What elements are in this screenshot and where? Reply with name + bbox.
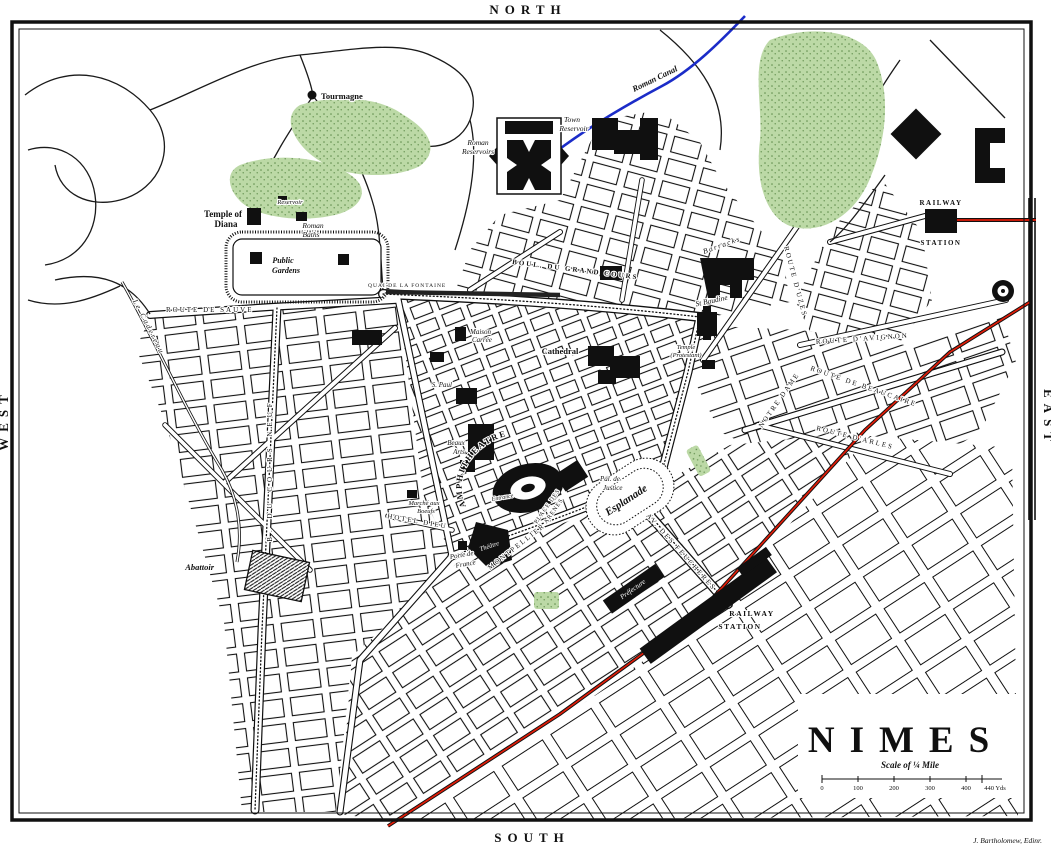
s-paul-church xyxy=(456,388,477,404)
label-station-central-1: RAILWAY xyxy=(729,609,774,618)
svg-text:300: 300 xyxy=(925,785,935,792)
label-temple-protestant-2: (Protestant) xyxy=(670,352,701,359)
label-maison-carree-1: Maison xyxy=(469,328,492,336)
label-temple-diana-2: Diana xyxy=(214,219,238,229)
scale-label: Scale of ¼ Mile xyxy=(881,760,939,770)
label-cours-neuf: B. DU COURS NEUF xyxy=(266,398,274,541)
compass-south: SOUTH xyxy=(494,830,570,845)
label-marche-2: Boeufs xyxy=(417,508,435,515)
label-abattoir: Abattoir xyxy=(184,562,215,572)
label-marche-1: Marché aux xyxy=(408,500,440,507)
label-roman-baths-2: Baths xyxy=(302,230,319,239)
compass-north: NORTH xyxy=(489,2,566,17)
label-station-ne-2: STATION xyxy=(921,239,962,247)
label-pal-justice-1: Pal. de xyxy=(599,475,620,483)
label-roman-reservoirs-2: Reservoirs xyxy=(461,147,494,156)
compass-west: WEST xyxy=(0,389,11,451)
label-tourmagne: Tourmagne xyxy=(321,91,363,101)
label-town-reservoir-1: Town xyxy=(564,115,580,124)
label-public-gardens-1: Public xyxy=(272,256,294,265)
roman-baths-building xyxy=(296,212,307,221)
map-title: NIMES xyxy=(808,720,1004,761)
svg-text:100: 100 xyxy=(853,785,863,792)
label-route-sauve: ROUTE DE SAUVE xyxy=(166,306,254,314)
label-maison-carree-2: Carrée xyxy=(472,336,492,344)
label-temple-diana-1: Temple of xyxy=(204,209,243,219)
porte-de-france-building xyxy=(458,541,467,550)
svg-text:400: 400 xyxy=(961,785,971,792)
label-station-central-2: STATION xyxy=(718,622,761,631)
railway-station-ne-building xyxy=(925,209,957,233)
compass-east: EAST xyxy=(1041,389,1051,447)
label-town-reservoir-2: Reservoir xyxy=(558,124,588,133)
label-station-ne-1: RAILWAY xyxy=(919,199,962,207)
maison-carree-building xyxy=(455,327,466,341)
fontaine-channel xyxy=(386,292,560,295)
map-canvas: Tourmagne Temple of Diana Reservoir Roma… xyxy=(0,0,1051,846)
svg-text:0: 0 xyxy=(820,785,823,792)
round-building xyxy=(992,280,1014,302)
label-roman-reservoirs-1: Roman xyxy=(466,138,488,147)
park-small-south xyxy=(534,592,559,609)
label-beaux-arts-1: Beaux xyxy=(447,439,465,447)
label-quai-fontaine: QUAI DE LA FONTAINE xyxy=(368,283,446,289)
nimes-map-svg: Tourmagne Temple of Diana Reservoir Roma… xyxy=(0,0,1051,846)
temple-of-diana-building xyxy=(247,208,261,225)
svg-text:440 Yds: 440 Yds xyxy=(984,785,1006,792)
label-reservoir: Reservoir xyxy=(276,199,303,206)
label-s-paul: S. Paul xyxy=(432,381,452,389)
label-cathedral: Cathedral xyxy=(542,346,579,356)
label-pal-justice-2: Justice xyxy=(603,484,622,492)
temple-protestant-building xyxy=(702,360,715,369)
marche-building xyxy=(407,490,417,498)
cartographer-credit: J. Bartholomew, Edinr. xyxy=(973,836,1042,845)
svg-text:200: 200 xyxy=(889,785,899,792)
citadel-fort xyxy=(489,118,569,194)
label-roman-baths-1: Roman xyxy=(301,221,323,230)
tourmagne-tower xyxy=(308,91,317,100)
label-temple-protestant-1: Temple xyxy=(677,344,696,351)
label-public-gardens-2: Gardens xyxy=(272,266,300,275)
label-beaux-arts-2: Arts xyxy=(452,448,465,456)
public-gardens xyxy=(226,232,388,302)
